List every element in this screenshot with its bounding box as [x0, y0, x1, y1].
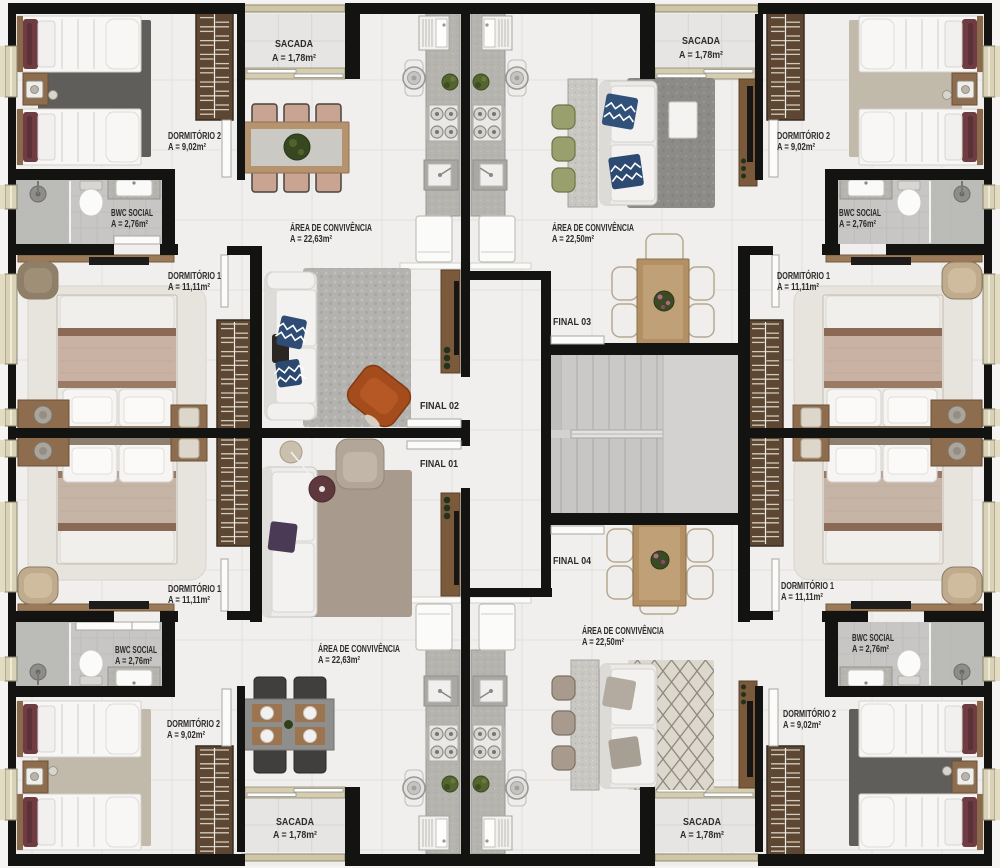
svg-text:BWC SOCIAL: BWC SOCIAL: [852, 633, 894, 644]
svg-text:A = 9,02m²: A = 9,02m²: [783, 720, 821, 731]
svg-text:BWC SOCIAL: BWC SOCIAL: [115, 645, 157, 656]
svg-text:DORMITÓRIO 2: DORMITÓRIO 2: [167, 717, 220, 730]
svg-text:DORMITÓRIO 1: DORMITÓRIO 1: [781, 579, 834, 592]
svg-text:FINAL 03: FINAL 03: [553, 317, 591, 328]
svg-text:A = 1,78m²: A = 1,78m²: [272, 53, 317, 64]
svg-text:DORMITÓRIO 1: DORMITÓRIO 1: [777, 269, 830, 282]
svg-text:A = 22,50m²: A = 22,50m²: [582, 637, 624, 648]
svg-text:SACADA: SACADA: [683, 817, 722, 828]
svg-text:A = 11,11m²: A = 11,11m²: [781, 592, 823, 603]
svg-text:SACADA: SACADA: [682, 36, 721, 47]
svg-text:SACADA: SACADA: [275, 39, 314, 50]
svg-text:A = 22,63m²: A = 22,63m²: [318, 655, 360, 666]
svg-text:DORMITÓRIO 2: DORMITÓRIO 2: [168, 129, 221, 142]
svg-text:SACADA: SACADA: [276, 817, 315, 828]
svg-text:ÁREA DE CONVIVÊNCIA: ÁREA DE CONVIVÊNCIA: [290, 221, 372, 234]
svg-text:DORMITÓRIO 2: DORMITÓRIO 2: [777, 129, 830, 142]
svg-text:FINAL 02: FINAL 02: [420, 401, 459, 412]
svg-text:DORMITÓRIO 1: DORMITÓRIO 1: [168, 582, 221, 595]
svg-text:A = 11,11m²: A = 11,11m²: [168, 282, 210, 293]
svg-text:A = 11,11m²: A = 11,11m²: [168, 595, 210, 606]
svg-text:DORMITÓRIO 2: DORMITÓRIO 2: [783, 707, 836, 720]
svg-text:A = 9,02m²: A = 9,02m²: [167, 730, 205, 741]
svg-text:A = 22,63m²: A = 22,63m²: [290, 234, 332, 245]
svg-text:ÁREA DE CONVIVÊNCIA: ÁREA DE CONVIVÊNCIA: [582, 624, 664, 637]
svg-text:BWC SOCIAL: BWC SOCIAL: [839, 208, 881, 219]
svg-text:BWC SOCIAL: BWC SOCIAL: [111, 208, 153, 219]
svg-text:A = 2,76m²: A = 2,76m²: [852, 644, 889, 655]
svg-text:A = 22,50m²: A = 22,50m²: [552, 234, 594, 245]
svg-text:A = 9,02m²: A = 9,02m²: [168, 142, 206, 153]
svg-text:A = 9,02m²: A = 9,02m²: [777, 142, 815, 153]
svg-text:ÁREA DE CONVIVÊNCIA: ÁREA DE CONVIVÊNCIA: [318, 642, 400, 655]
svg-text:A = 2,76m²: A = 2,76m²: [839, 219, 876, 230]
svg-text:A = 11,11m²: A = 11,11m²: [777, 282, 819, 293]
svg-text:A = 1,78m²: A = 1,78m²: [679, 50, 724, 61]
svg-text:FINAL 01: FINAL 01: [420, 459, 458, 470]
svg-text:A = 1,78m²: A = 1,78m²: [273, 830, 318, 841]
svg-text:A = 2,76m²: A = 2,76m²: [111, 219, 148, 230]
svg-text:ÁREA DE CONVIVÊNCIA: ÁREA DE CONVIVÊNCIA: [552, 221, 634, 234]
svg-text:A = 2,76m²: A = 2,76m²: [115, 656, 152, 667]
svg-text:DORMITÓRIO 1: DORMITÓRIO 1: [168, 269, 221, 282]
svg-text:A = 1,78m²: A = 1,78m²: [680, 830, 725, 841]
svg-text:FINAL 04: FINAL 04: [553, 556, 591, 567]
